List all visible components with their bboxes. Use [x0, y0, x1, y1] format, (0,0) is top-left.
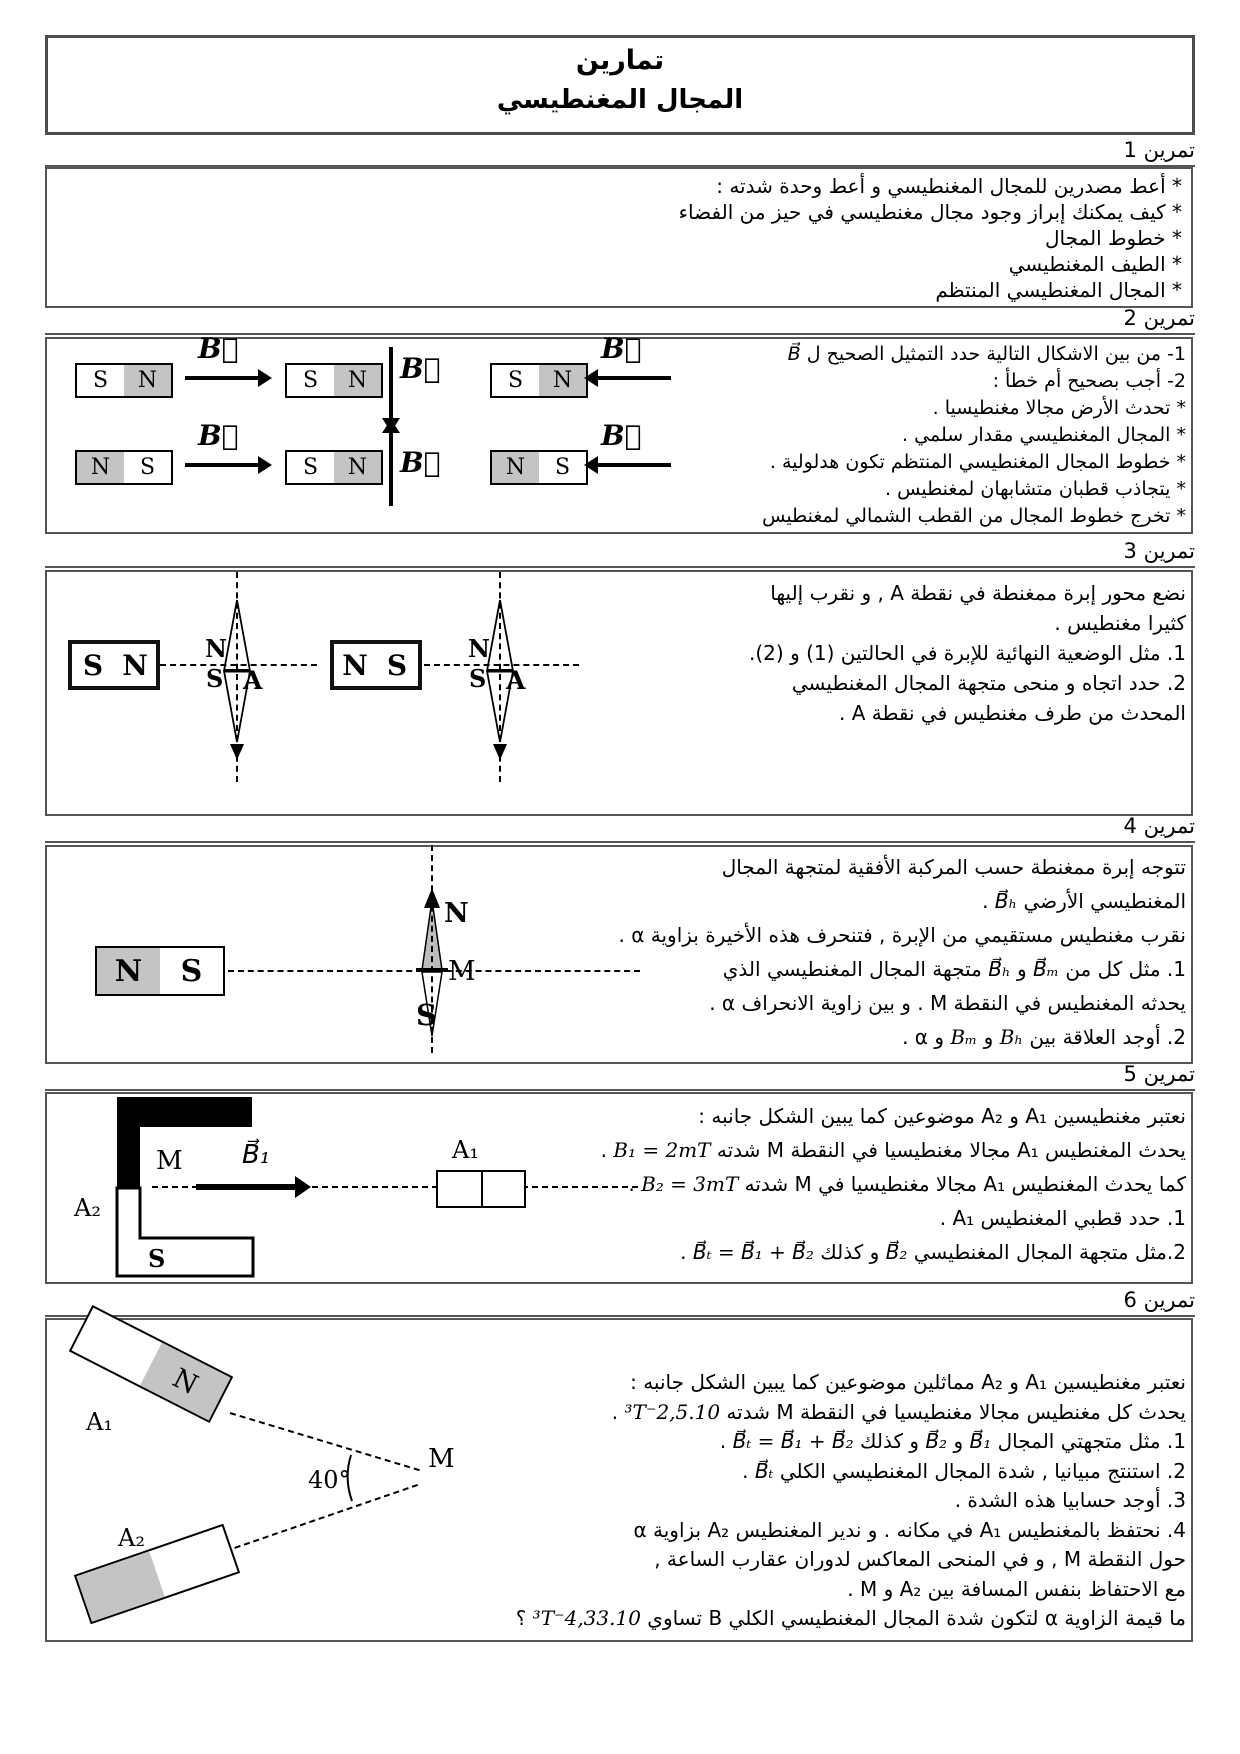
pole-label: S: [77, 365, 124, 396]
text-line: يحدث المغنطيس A₁ مجالا مغنطيسيا في النقط…: [556, 1133, 1186, 1167]
bar-magnet: SN: [285, 363, 383, 398]
pole-label: N: [97, 948, 160, 994]
needle-north-label: N: [444, 898, 469, 929]
pole-label: N: [124, 365, 171, 396]
b-field-arrow-up-icon: [389, 432, 393, 506]
b-vector-label: B⃗: [198, 332, 238, 365]
text-line: كثيرا مغنطيس .: [636, 608, 1186, 638]
b-field-arrow-right-icon: [185, 463, 259, 467]
text-line: يحدث كل مغنطيس مجالا مغنطيسيا في النقطة …: [428, 1398, 1186, 1428]
pole-label: S: [124, 452, 171, 483]
needle-south-label: S: [416, 998, 437, 1032]
needle-north-label: N: [205, 634, 227, 663]
text-line: * أعط مصدرين للمجال المغنطيسي و أعط وحدة…: [52, 173, 1182, 199]
point-a-label: A: [506, 666, 525, 695]
text-line: * المجال المغنطيسي المنتظم: [52, 277, 1182, 303]
text-line: 3. أوجد حسابيا هذه الشدة .: [428, 1486, 1186, 1516]
needle-north-label: N: [468, 634, 490, 663]
b-vector-label: B⃗: [198, 419, 238, 452]
bar-magnet: SN: [285, 450, 383, 485]
text-line: 1. حدد قطبي المغنطيس A₁ .: [556, 1201, 1186, 1235]
point-m-label: M: [448, 956, 476, 987]
text-line: 2. أوجد العلاقة بين Bₕ و Bₘ و α .: [636, 1020, 1186, 1054]
pole-label: N: [77, 452, 124, 483]
exercise2-text: 1- من بين الاشكال التالية حدد التمثيل ال…: [650, 341, 1186, 530]
pole-label: S: [72, 644, 114, 686]
pole-label: S: [160, 948, 223, 994]
pole-label: S: [287, 365, 334, 396]
text-line: يحدثه المغنطيس في النقطة M . و بين زاوية…: [636, 986, 1186, 1020]
exercise6-heading: تمرين 6: [45, 1288, 1195, 1317]
point-m-label: M: [156, 1146, 183, 1176]
exercise3-heading: تمرين 3: [45, 539, 1195, 568]
b-field-arrow-left-icon: [597, 463, 671, 467]
text-line: * الطيف المغنطيسي: [52, 251, 1182, 277]
b-field-arrow-right-icon: [185, 376, 259, 380]
text-line: * خطوط المجال: [52, 225, 1182, 251]
title-box: تمارين المجال المغنطيسي: [45, 35, 1195, 135]
exercise1-heading: تمرين 1: [45, 138, 1195, 167]
point-a-label: A: [243, 666, 262, 695]
needle-south-label: S: [206, 664, 223, 693]
bar-magnet: NS: [95, 946, 225, 996]
pole-label: N: [492, 452, 539, 483]
text-line: ما قيمة الزاوية α لتكون شدة المجال المغن…: [428, 1604, 1186, 1634]
text-line: * المجال المغنطيسي مقدار سلمي .: [650, 422, 1186, 449]
exercise5-heading: تمرين 5: [45, 1062, 1195, 1091]
b1-vector-label: B⃗₁: [242, 1140, 270, 1170]
text-line: 1. مثل كل من B⃗ₘ و B⃗ₕ متجهة المجال المغ…: [636, 952, 1186, 986]
b1-field-arrow-icon: [196, 1184, 296, 1190]
pole-label: S: [148, 1244, 165, 1273]
bar-magnet-a1: [436, 1170, 526, 1208]
text-line: نقرب مغنطيس مستقيمي من الإبرة , فتنحرف ه…: [636, 918, 1186, 952]
b-vector-label: B⃗: [400, 446, 440, 479]
worksheet-page: تمارين المجال المغنطيسي تمرين 1 * أعط مص…: [0, 0, 1240, 1754]
text-line: تتوجه إبرة ممغنطة حسب المركبة الأفقية لم…: [636, 850, 1186, 884]
text-line: المحدث من طرف مغنطيس في نقطة A .: [636, 698, 1186, 728]
text-line: 1. مثل الوضعية النهائية للإبرة في الحالت…: [636, 638, 1186, 668]
b-vector-label: B⃗: [601, 419, 641, 452]
pole-label: S: [492, 365, 539, 396]
document-subtitle: المجال المغنطيسي: [48, 85, 1192, 115]
text-line: 4. نحتفظ بالمغنطيس A₁ في مكانه . و ندير …: [428, 1516, 1186, 1546]
text-line: كما يحدث المغنطيس A₁ مجالا مغنطيسيا في M…: [556, 1167, 1186, 1201]
bar-magnet: NS: [330, 640, 422, 690]
b-field-arrow-left-icon: [597, 376, 671, 380]
magnet-a1-label: A₁: [86, 1408, 113, 1436]
exercise4-text: تتوجه إبرة ممغنطة حسب المركبة الأفقية لم…: [636, 850, 1186, 1054]
b-vector-label: B⃗: [400, 352, 440, 385]
exercise1-text: * أعط مصدرين للمجال المغنطيسي و أعط وحدة…: [52, 173, 1182, 303]
pole-label: S: [539, 452, 586, 483]
text-line: * كيف يمكنك إبراز وجود مجال مغنطيسي في ح…: [52, 199, 1182, 225]
pole-label: N: [539, 365, 586, 396]
pole-label: S: [376, 644, 418, 686]
b-vector-label: B⃗: [601, 332, 641, 365]
text-line: 1. مثل متجهتي المجال B⃗₁ و B⃗₂ و كذلك B⃗…: [428, 1427, 1186, 1457]
text-line: المغنطيسي الأرضي B⃗ₕ .: [636, 884, 1186, 918]
text-line: * يتجاذب قطبان متشابهان لمغنطيس .: [650, 476, 1186, 503]
angle-arc-icon: [330, 1440, 440, 1525]
exercise3-text: نضع محور إبرة ممغنطة في نقطة A , و نقرب …: [636, 578, 1186, 728]
magnet-a1-label: A₁: [452, 1136, 479, 1164]
pole-label: S: [287, 452, 334, 483]
text-line: نعتبر مغنطيسين A₁ و A₂ مماثلين موضوعين ك…: [428, 1368, 1186, 1398]
text-line: 2. حدد اتجاه و منحى متجهة المجال المغنطي…: [636, 668, 1186, 698]
pole-label: N: [114, 644, 156, 686]
pole-label: N: [334, 365, 381, 396]
bar-magnet: SN: [68, 640, 160, 690]
text-line: * خطوط المجال المغنطيسي المنتظم تكون هدل…: [650, 449, 1186, 476]
exercise2-heading: تمرين 2: [45, 306, 1195, 335]
pole-label: N: [334, 452, 381, 483]
text-line: مع الاحتفاظ بنفس المسافة بين A₂ و M .: [428, 1575, 1186, 1605]
b-field-arrow-down-icon: [389, 347, 393, 419]
text-line: * تخرج خطوط المجال من القطب الشمالي لمغن…: [650, 503, 1186, 530]
magnet-a2-label: A₂: [118, 1524, 145, 1552]
exercise5-text: نعتبر مغنطيسين A₁ و A₂ موضوعين كما يبين …: [556, 1099, 1186, 1269]
magnet-a2-label: A₂: [74, 1194, 101, 1222]
pole-label: N: [334, 644, 376, 686]
exercise6-text: نعتبر مغنطيسين A₁ و A₂ مماثلين موضوعين ك…: [428, 1368, 1186, 1634]
bar-magnet: NS: [490, 450, 588, 485]
exercise4-heading: تمرين 4: [45, 814, 1195, 843]
text-line: نضع محور إبرة ممغنطة في نقطة A , و نقرب …: [636, 578, 1186, 608]
bar-magnet: SN: [490, 363, 588, 398]
needle-south-label: S: [469, 664, 486, 693]
text-line: * تحدث الأرض مجالا مغنطيسيا .: [650, 395, 1186, 422]
text-line: 1- من بين الاشكال التالية حدد التمثيل ال…: [650, 341, 1186, 368]
text-line: حول النقطة M , و في المنحى المعاكس لدورا…: [428, 1545, 1186, 1575]
text-line: 2. استنتج مبيانيا , شدة المجال المغنطيسي…: [428, 1457, 1186, 1487]
bar-magnet: NS: [75, 450, 173, 485]
document-title: تمارين: [48, 45, 1192, 76]
text-line: نعتبر مغنطيسين A₁ و A₂ موضوعين كما يبين …: [556, 1099, 1186, 1133]
bar-magnet: SN: [75, 363, 173, 398]
text-line: 2- أجب بصحيح أم خطأ :: [650, 368, 1186, 395]
text-line: 2.مثل متجهة المجال المغنطيسي B⃗₂ و كذلك …: [556, 1235, 1186, 1269]
